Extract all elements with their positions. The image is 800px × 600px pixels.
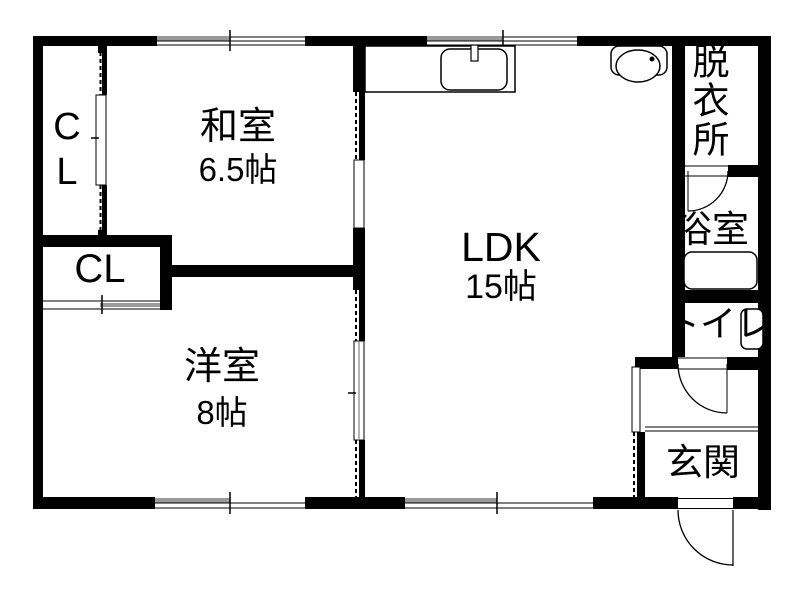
floorplan-drawing — [0, 0, 800, 600]
toilet-door — [678, 357, 727, 413]
cl-bottom-wall — [33, 235, 172, 247]
ldk-hall-stub-wall — [635, 357, 678, 369]
washitsu-size-label: 6.5帖 — [181, 153, 295, 186]
window-yoshitsu-bottom — [155, 492, 305, 514]
wall-top — [33, 36, 763, 46]
yoshitsu-size-label: 8帖 — [170, 396, 274, 429]
wash-basin-faucet — [650, 57, 655, 62]
closet-lower-label: CL — [68, 249, 132, 289]
pocket-bar — [102, 52, 107, 95]
toilet-bottom-wall — [727, 357, 763, 370]
exterior-walls — [33, 36, 771, 510]
bathtub — [684, 252, 757, 289]
cl2-right-wall — [160, 235, 172, 310]
kitchen-faucet — [471, 45, 478, 61]
entrance-door — [678, 497, 733, 566]
yoshitsu-name-label: 洋室 — [170, 348, 274, 386]
pocket-bar — [359, 440, 365, 497]
bathroom-door — [685, 165, 728, 211]
window-washitsu-top — [157, 30, 305, 51]
washitsu-yoshitsu-wall — [172, 265, 365, 277]
cl-divider-top — [98, 46, 107, 53]
pocket-bar — [359, 290, 365, 341]
sliding-leaf-washitsu — [354, 160, 364, 228]
center-wall-middle — [353, 228, 365, 290]
bathroom-divider-wall — [728, 165, 758, 177]
floorplan-canvas: 和室 6.5帖 CL CL 洋室 8帖 LDK 15帖 脱衣所 浴室 トイレ 玄… — [0, 0, 800, 600]
datsuijo-label: 脱衣所 — [689, 42, 726, 159]
genkan-label: 玄関 — [656, 444, 750, 481]
closet-upper-label: CL — [48, 106, 86, 196]
ldk-name-label: LDK — [446, 227, 556, 268]
bath-toilet-divider — [672, 290, 771, 303]
wall-bottom — [33, 497, 763, 509]
sliding-door-closet2 — [43, 295, 160, 314]
pocket-bar — [102, 185, 107, 232]
ldk-size-label: 15帖 — [446, 270, 556, 304]
interior-walls — [33, 46, 771, 497]
window-ldk-bottom — [405, 492, 593, 514]
toire-label: トイレ — [664, 306, 770, 342]
entrance-step-line — [645, 427, 762, 431]
wash-basin-bowl — [616, 50, 660, 82]
wall-left — [33, 36, 43, 509]
sliding-leaf-closet — [96, 95, 106, 185]
pocket-bar — [359, 92, 365, 160]
washitsu-name-label: 和室 — [186, 108, 290, 146]
yokushitsu-label: 浴室 — [662, 211, 762, 248]
hall-partition-bar — [637, 432, 645, 497]
sliding-leaf-hall — [632, 367, 640, 432]
center-wall-upper — [353, 46, 365, 92]
wall-right — [758, 36, 771, 510]
